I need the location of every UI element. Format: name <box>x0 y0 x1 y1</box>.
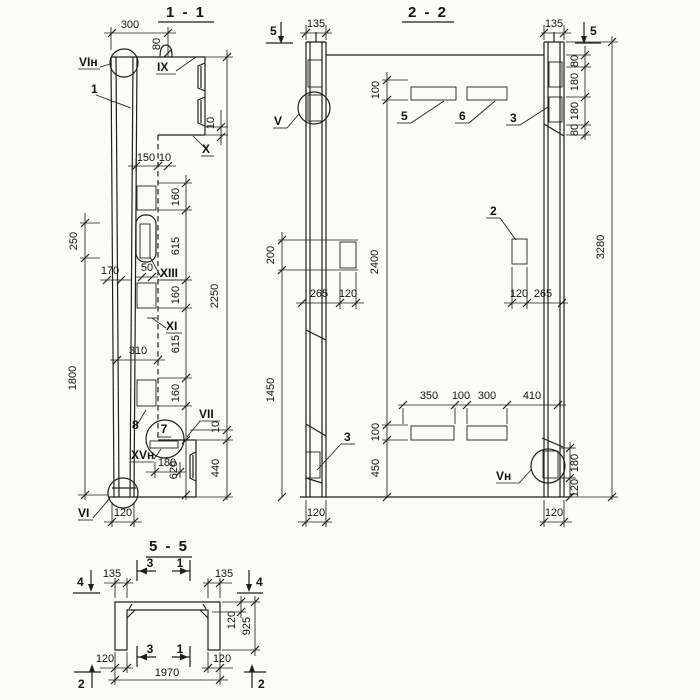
dim-120-bottom-right: 120 <box>545 507 563 519</box>
cut-label-3-bottom: 3 <box>147 642 154 656</box>
dim-925: 925 <box>241 617 253 635</box>
dim-2400: 2400 <box>369 250 381 274</box>
hatch-block <box>137 283 156 308</box>
cut-label-4-right: 4 <box>256 575 263 589</box>
dim-10-bottom: 10 <box>210 421 222 433</box>
dim-265-left: 265 <box>310 288 328 300</box>
dim-440: 440 <box>210 459 222 477</box>
rebar-hatch-blocks <box>136 186 178 448</box>
dim-615-a: 615 <box>170 237 182 255</box>
mark-vi-n: VIн <box>79 55 98 69</box>
cut-label-3-top: 3 <box>147 556 154 570</box>
cut-label-4-left: 4 <box>77 575 84 589</box>
mark-xi: XI <box>166 319 177 333</box>
dimension-ticks <box>111 579 259 684</box>
part-label-7: 7 <box>161 422 168 436</box>
dim-10-flange: 10 <box>159 152 171 164</box>
hatch-block <box>467 87 507 100</box>
section-5-5: 5 - 5 4 135 3 1 135 4 120 925 120 3 1 12… <box>73 538 266 691</box>
dim-310: 310 <box>129 345 147 357</box>
dimension-ticks <box>278 29 616 526</box>
section-2-2: 2 - 2 5 135 135 5 80 180 180 80 100 5 6 … <box>265 4 618 527</box>
dim-200: 200 <box>265 246 277 264</box>
dim-160-a: 160 <box>170 188 182 206</box>
hatch-block <box>512 239 527 264</box>
mark-v: V <box>274 114 282 128</box>
dim-120-bottom: 120 <box>114 507 132 519</box>
dim-3280: 3280 <box>595 235 607 259</box>
hatch-block <box>306 452 320 478</box>
cut-marker-5-right <box>575 22 601 44</box>
drawing-sheet: 1 - 1 300 80 VIн 1 IX X 10 150 10 160 61… <box>0 0 700 700</box>
dim-180-b: 180 <box>569 102 581 120</box>
hatch-block <box>411 426 454 440</box>
dim-160-c: 160 <box>170 384 182 402</box>
cut-label-2-right: 2 <box>258 677 265 691</box>
cut-label-5-left: 5 <box>270 24 277 38</box>
dim-135-right: 135 <box>215 568 233 580</box>
dim-300: 300 <box>478 390 496 402</box>
cut-label-2-left: 2 <box>78 677 85 691</box>
dim-100-bottom: 100 <box>370 423 382 441</box>
part-label-5: 5 <box>401 109 408 123</box>
hatch-block <box>140 224 150 258</box>
dim-250: 250 <box>68 232 80 250</box>
dim-120-detail: 120 <box>569 479 581 497</box>
mark-xiii: XIII <box>160 266 178 280</box>
dim-100-mid: 100 <box>452 390 470 402</box>
dim-170: 170 <box>101 265 119 277</box>
dim-135-right: 135 <box>545 18 563 30</box>
hatch-block <box>543 451 558 478</box>
dim-135-left: 135 <box>307 18 325 30</box>
hatch-block <box>411 87 456 100</box>
dim-80-b: 80 <box>569 124 581 136</box>
hatch-block <box>340 242 356 268</box>
dim-120-bottom-left: 120 <box>307 507 325 519</box>
cut-label-1-bottom: 1 <box>177 642 184 656</box>
part-label-6: 6 <box>459 109 466 123</box>
dim-120-bottom-left: 120 <box>96 653 114 665</box>
dim-350: 350 <box>420 390 438 402</box>
dim-450: 450 <box>370 459 382 477</box>
mark-ix: IX <box>157 60 168 74</box>
member-outline <box>108 45 205 497</box>
dim-180-a: 180 <box>569 73 581 91</box>
hatch-block <box>137 186 156 210</box>
dim-180-detail: 180 <box>569 454 581 472</box>
dim-2250: 2250 <box>209 284 221 308</box>
hatch-block <box>467 426 507 440</box>
slot-detail <box>136 215 156 262</box>
dimension-ticks <box>81 29 231 526</box>
dim-120-bottom-right: 120 <box>213 653 231 665</box>
dim-120-left: 120 <box>339 288 357 300</box>
dim-80-a: 80 <box>569 55 581 67</box>
dim-1970: 1970 <box>155 667 179 679</box>
dim-1450: 1450 <box>265 378 277 402</box>
panel-outline <box>300 32 570 497</box>
dim-80: 80 <box>151 38 163 50</box>
dim-50: 50 <box>141 262 153 274</box>
dim-100-top: 100 <box>370 81 382 99</box>
dim-150: 150 <box>137 152 155 164</box>
dim-300: 300 <box>121 19 139 31</box>
channel-outline <box>115 602 220 650</box>
hatch-block <box>137 380 156 406</box>
dim-10-top: 10 <box>205 117 217 129</box>
dim-120-thickness: 120 <box>226 611 238 629</box>
dim-620: 620 <box>168 461 180 479</box>
part-label-3-bottom: 3 <box>344 430 351 444</box>
dim-135-left: 135 <box>103 568 121 580</box>
part-label-8: 8 <box>132 418 139 432</box>
part-label-1: 1 <box>91 82 98 96</box>
mark-v-n: Vн <box>496 469 511 483</box>
cut-label-5-right: 5 <box>590 24 597 38</box>
dimension-lines <box>78 27 233 527</box>
section-title-1-1: 1 - 1 <box>166 4 206 21</box>
section-title-5-5: 5 - 5 <box>149 538 189 555</box>
mark-xv-n: XVн <box>131 448 154 462</box>
dimension-lines <box>100 578 260 685</box>
mark-vii: VII <box>199 407 214 421</box>
section-1-1: 1 - 1 300 80 VIн 1 IX X 10 150 10 160 61… <box>67 4 233 527</box>
dim-410: 410 <box>523 390 541 402</box>
dim-1800: 1800 <box>67 366 79 390</box>
mark-x: X <box>202 142 210 156</box>
part-label-2: 2 <box>490 204 497 218</box>
dim-265-right: 265 <box>534 288 552 300</box>
dim-160-b: 160 <box>170 286 182 304</box>
part-label-3-top: 3 <box>510 111 517 125</box>
dim-615-b: 615 <box>170 335 182 353</box>
section-title-2-2: 2 - 2 <box>408 4 448 21</box>
dim-120-right: 120 <box>510 288 528 300</box>
hatch-block <box>150 441 178 448</box>
mark-vi: VI <box>78 506 89 520</box>
cut-label-1-top: 1 <box>177 556 184 570</box>
